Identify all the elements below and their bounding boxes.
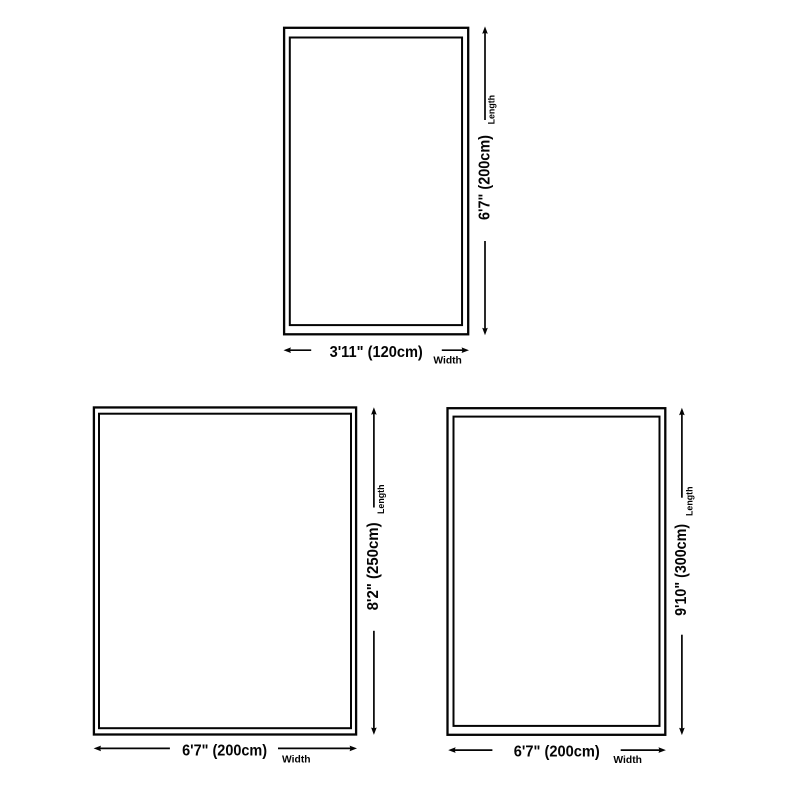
svg-text:Width: Width — [613, 755, 642, 766]
svg-text:Width: Width — [433, 355, 462, 366]
svg-text:6'7" (200cm): 6'7" (200cm) — [477, 135, 494, 220]
svg-text:9'10" (300cm): 9'10" (300cm) — [673, 524, 690, 616]
svg-text:Length: Length — [376, 485, 386, 515]
svg-text:8'2" (250cm): 8'2" (250cm) — [365, 522, 382, 610]
svg-text:Length: Length — [487, 95, 497, 125]
svg-text:Length: Length — [684, 487, 694, 517]
svg-text:6'7" (200cm): 6'7" (200cm) — [514, 744, 600, 761]
svg-text:6'7" (200cm): 6'7" (200cm) — [182, 743, 267, 760]
svg-text:Width: Width — [282, 755, 311, 766]
svg-text:3'11" (120cm): 3'11" (120cm) — [330, 344, 423, 361]
